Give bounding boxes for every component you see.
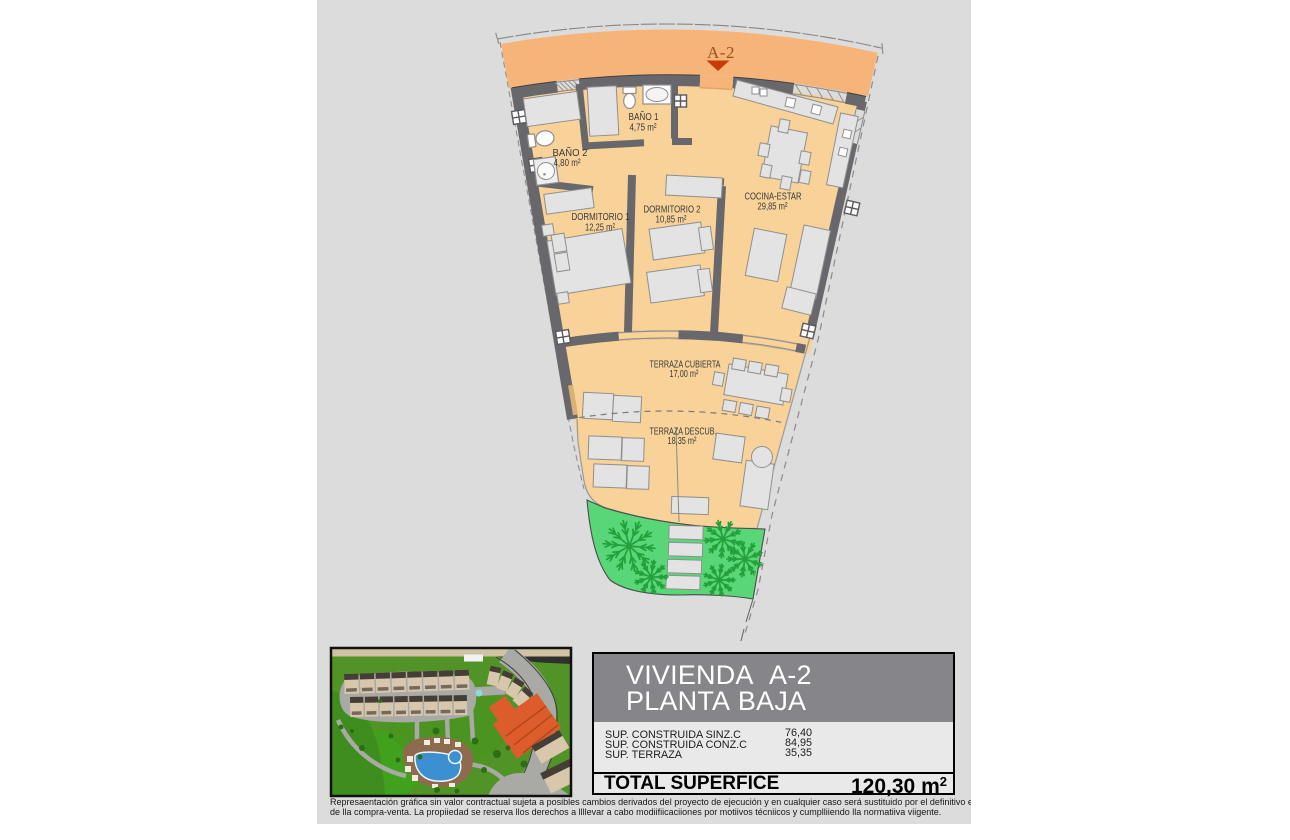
svg-text:DORMITORIO 1: DORMITORIO 1 [572,212,630,223]
svg-text:BAÑO 1: BAÑO 1 [629,110,659,123]
svg-text:29,85 m²: 29,85 m² [758,202,789,213]
svg-text:A-2: A-2 [707,43,735,62]
svg-text:17,00 m²: 17,00 m² [670,369,699,380]
svg-text:12,25 m²: 12,25 m² [585,223,616,234]
svg-text:18,35 m²: 18,35 m² [668,436,697,447]
svg-text:4,75 m²: 4,75 m² [630,123,658,134]
svg-text:10,85 m²: 10,85 m² [656,215,688,226]
svg-text:4,80 m²: 4,80 m² [554,158,582,169]
